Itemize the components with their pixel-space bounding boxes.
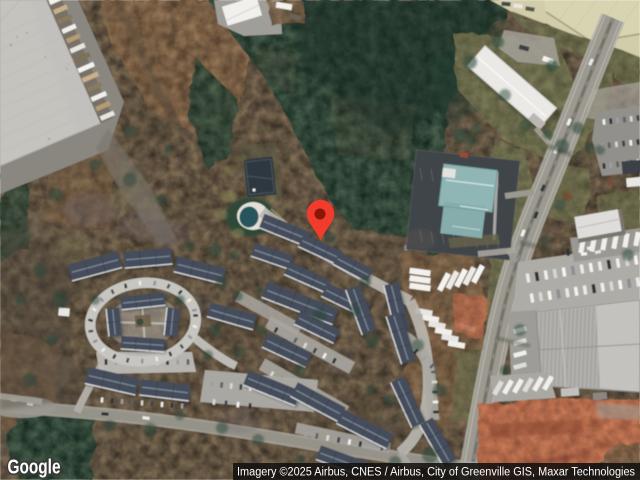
svg-text:Google: Google xyxy=(8,457,61,479)
svg-text:Imagery ©2025 Airbus, CNES / A: Imagery ©2025 Airbus, CNES / Airbus, Cit… xyxy=(237,467,635,479)
